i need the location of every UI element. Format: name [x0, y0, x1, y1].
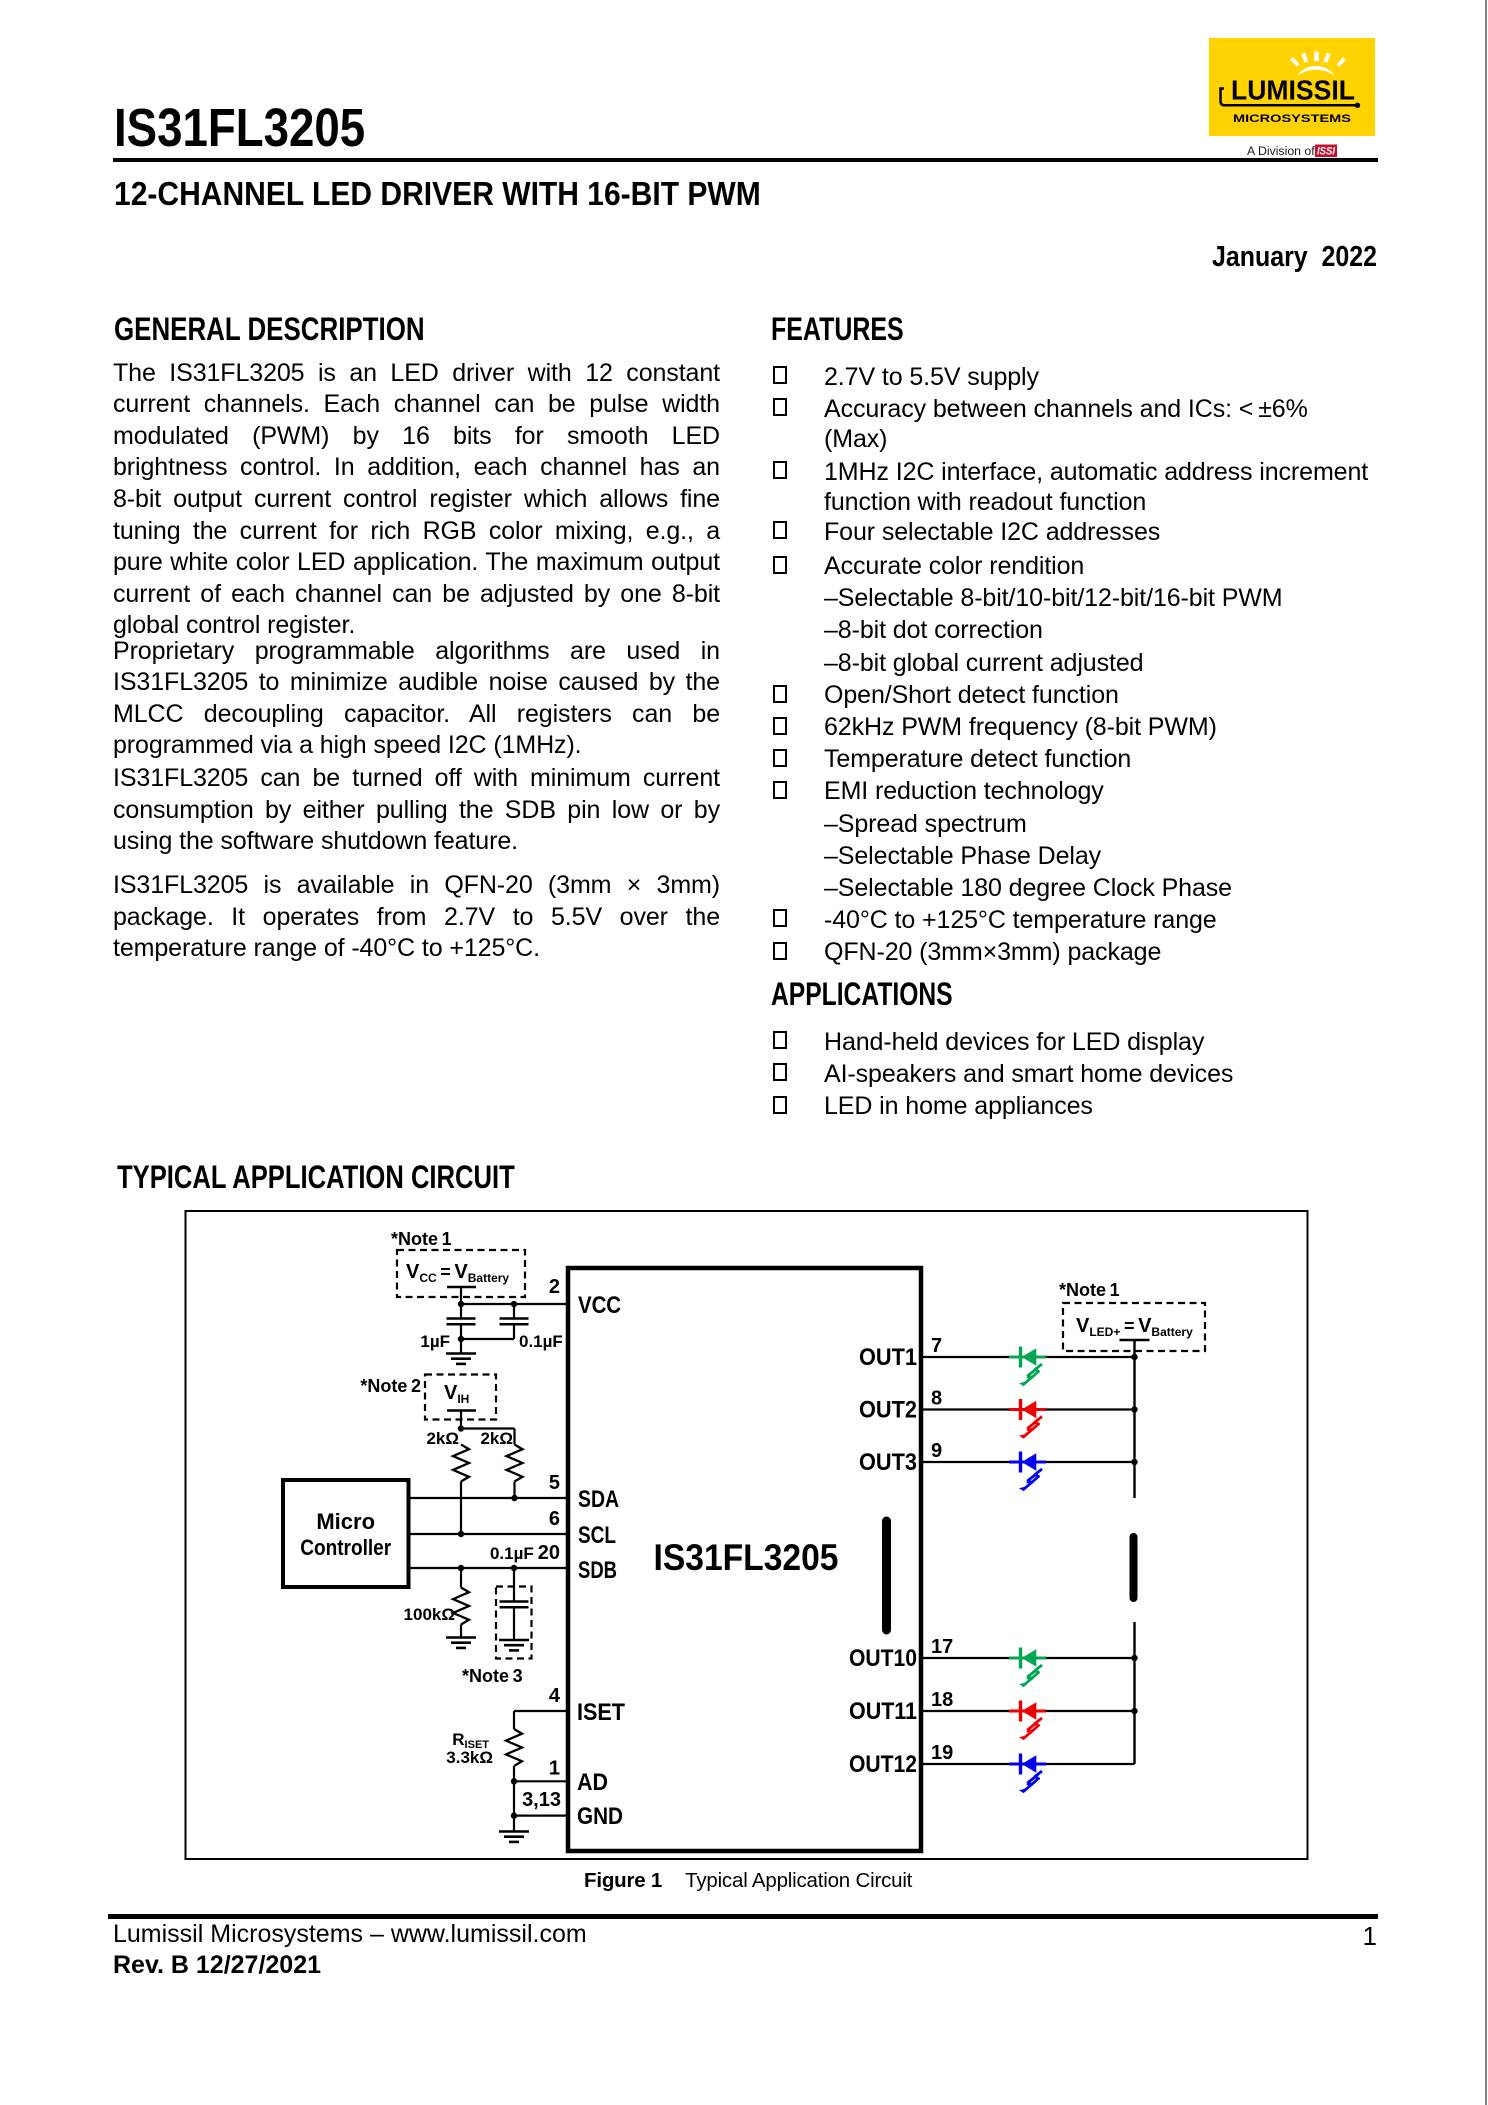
svg-text:*Note 3: *Note 3: [462, 1666, 523, 1686]
svg-text:GND: GND: [577, 1803, 623, 1830]
svg-text:SDB: SDB: [578, 1557, 617, 1584]
svg-text:SDA: SDA: [578, 1486, 619, 1513]
svg-text:6: 6: [549, 1508, 560, 1530]
svg-text:VLED+ = VBattery: VLED+ = VBattery: [1076, 1315, 1193, 1339]
svg-text:OUT10: OUT10: [849, 1645, 917, 1672]
svg-text:OUT11: OUT11: [849, 1698, 917, 1725]
svg-text:17: 17: [931, 1636, 953, 1658]
svg-text:OUT12: OUT12: [849, 1751, 917, 1778]
svg-text:100kΩ: 100kΩ: [404, 1605, 455, 1624]
svg-text:MICROSYSTEMS: MICROSYSTEMS: [1233, 113, 1351, 125]
svg-text:19: 19: [931, 1742, 953, 1764]
svg-text:1µF: 1µF: [420, 1332, 450, 1351]
svg-text:AD: AD: [577, 1769, 608, 1796]
svg-text:4: 4: [549, 1685, 561, 1707]
svg-text:0.1µF: 0.1µF: [519, 1332, 563, 1351]
svg-text:VCC = VBattery: VCC = VBattery: [406, 1261, 509, 1285]
svg-text:9: 9: [931, 1440, 942, 1462]
svg-text:2kΩ: 2kΩ: [480, 1429, 513, 1448]
svg-text:5: 5: [549, 1472, 560, 1494]
svg-text:18: 18: [931, 1689, 953, 1711]
svg-text:VCC: VCC: [578, 1292, 621, 1319]
svg-text:7: 7: [931, 1335, 942, 1357]
svg-text:8: 8: [931, 1388, 942, 1410]
svg-text:ISSI: ISSI: [1317, 146, 1336, 158]
svg-text:VIH: VIH: [444, 1382, 469, 1406]
svg-text:A Division of: A Division of: [1247, 144, 1315, 158]
svg-text:3.3kΩ: 3.3kΩ: [446, 1748, 493, 1767]
svg-text:LUMISSIL: LUMISSIL: [1231, 75, 1355, 106]
svg-text:OUT3: OUT3: [859, 1449, 917, 1476]
svg-text:SCL: SCL: [578, 1522, 616, 1549]
svg-text:*Note 1: *Note 1: [1059, 1280, 1120, 1300]
svg-text:2: 2: [549, 1276, 560, 1298]
svg-text:0.1µF 20: 0.1µF 20: [490, 1542, 560, 1564]
svg-text:2kΩ: 2kΩ: [426, 1429, 459, 1448]
svg-text:1: 1: [549, 1758, 560, 1780]
svg-text:OUT2: OUT2: [859, 1397, 917, 1424]
svg-text:ISET: ISET: [577, 1699, 625, 1726]
svg-text:Controller: Controller: [300, 1535, 391, 1560]
svg-text:*Note 2: *Note 2: [360, 1376, 421, 1396]
svg-text:3,13: 3,13: [522, 1789, 561, 1811]
svg-text:Micro: Micro: [316, 1509, 375, 1534]
svg-text:OUT1: OUT1: [859, 1344, 917, 1371]
svg-text:*Note 1: *Note 1: [391, 1229, 452, 1249]
svg-text:IS31FL3205: IS31FL3205: [654, 1537, 839, 1578]
